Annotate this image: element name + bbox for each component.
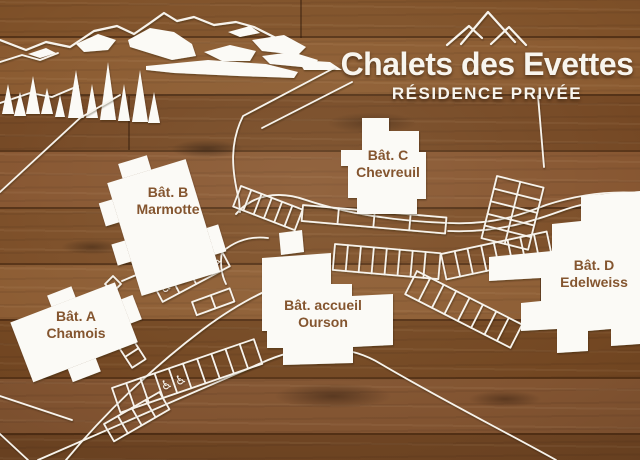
snow-patch [76,34,116,52]
building-subname: Ourson [284,314,362,331]
pine-tree [132,70,148,122]
building-subname: Edelweiss [560,274,628,291]
road-upper-right [538,96,544,167]
snow-patch [252,35,306,55]
building-name: Bât. D [560,257,628,274]
building-label-chevreuil: Bât. C Chevreuil [356,147,420,181]
pine-tree [148,92,160,123]
pine-tree [55,95,65,117]
building-name: Bât. B [136,184,199,201]
mountain-ridge-drawing [0,13,342,103]
three-peaks-mountain-logo-icon [447,12,526,45]
sign-title-block: Chalets des Evettes RÉSIDENCE PRIVÉE [334,46,640,104]
sign-subtitle: RÉSIDENCE PRIVÉE [334,84,640,104]
sign-title: Chalets des Evettes [334,46,640,82]
mountain-foothill-line [0,86,78,103]
building-label-edelweiss: Bât. D Edelweiss [560,257,628,291]
pine-tree [118,84,130,121]
building-label-chamois: Bât. A Chamois [46,308,105,342]
snow-patch [128,28,196,60]
pine-tree [41,88,53,114]
building-ourson-annex [279,230,304,255]
pine-tree [100,62,116,120]
building-subname: Chevreuil [356,164,420,181]
road-lower-left-spur [0,396,72,420]
road-connector-center [222,238,268,252]
parking-row [233,186,303,230]
road-from-mountain [233,68,334,212]
parking-row [405,271,522,348]
building-subname: Chamois [46,325,105,342]
building-name: Bât. accueil [284,297,362,314]
pine-tree [68,70,84,118]
buildings-drawing [6,118,640,395]
building-name: Bât. A [46,308,105,325]
road-lower-left-spur [0,434,28,460]
building-subname: Marmotte [136,201,199,218]
logo-peak-left [447,26,482,45]
pine-trees-drawing [2,62,160,123]
building-name: Bât. C [356,147,420,164]
building-label-ourson: Bât. accueil Ourson [284,297,362,331]
wooden-site-map-sign: ♿ ♿ ♿ ♿ [0,0,640,460]
snow-patch [204,45,256,61]
building-label-marmotte: Bât. B Marmotte [136,184,199,218]
snow-patch [28,48,56,58]
